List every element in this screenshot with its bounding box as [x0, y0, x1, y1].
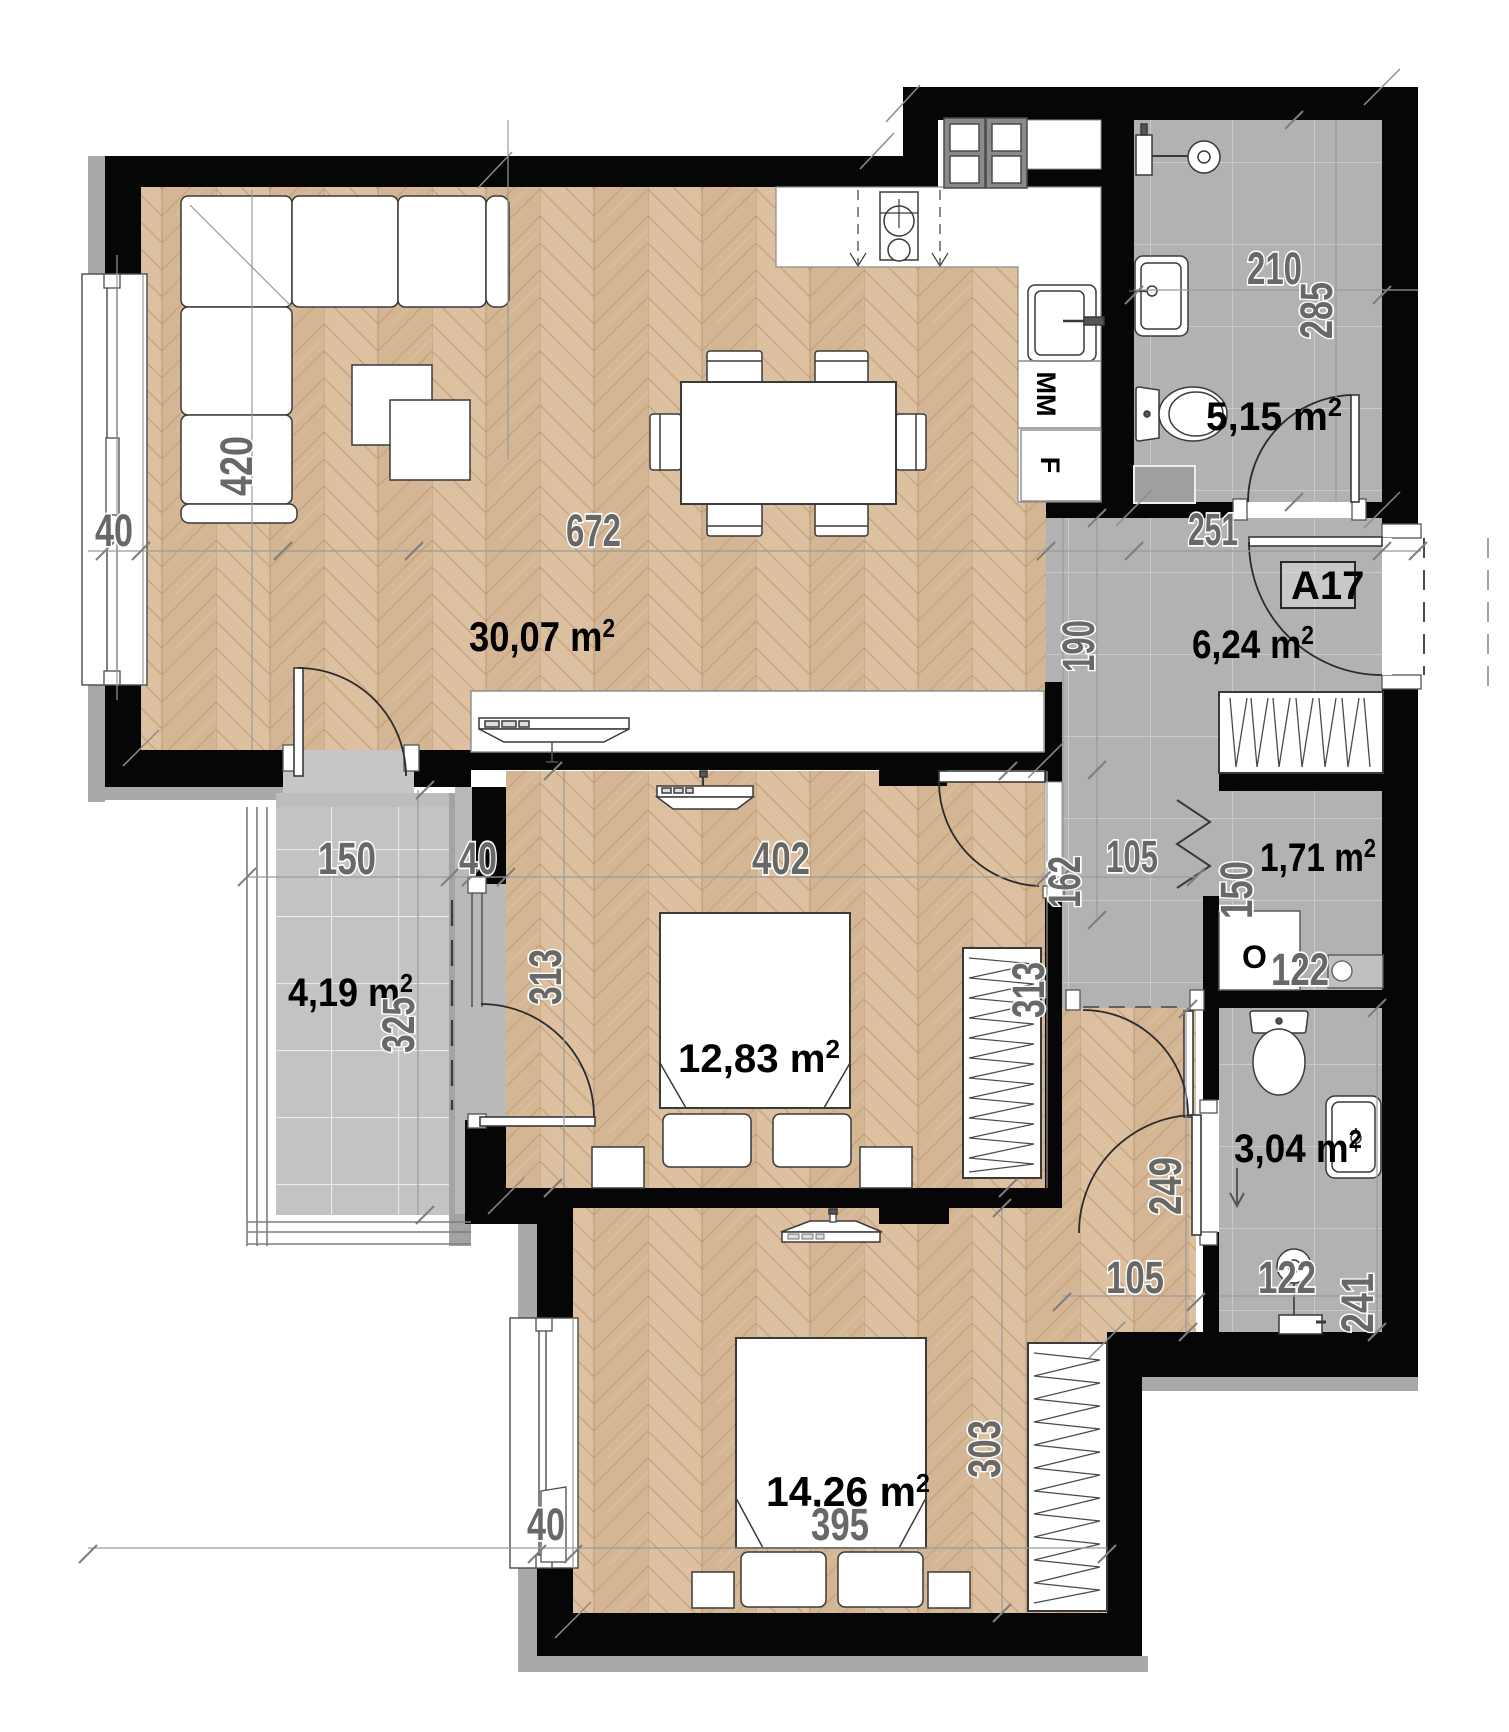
svg-text:395: 395 — [811, 1499, 869, 1550]
svg-text:285: 285 — [1291, 282, 1342, 339]
svg-text:672: 672 — [566, 505, 621, 556]
svg-text:40: 40 — [95, 505, 133, 556]
svg-text:F: F — [1035, 457, 1065, 474]
svg-text:1,71 m2: 1,71 m2 — [1260, 833, 1376, 880]
svg-text:150: 150 — [318, 833, 376, 884]
svg-text:O: O — [1242, 939, 1267, 975]
svg-text:303: 303 — [959, 1420, 1010, 1478]
svg-text:325: 325 — [373, 997, 424, 1053]
svg-text:6,24 m2: 6,24 m2 — [1192, 620, 1314, 667]
svg-text:249: 249 — [1140, 1157, 1191, 1215]
svg-text:150: 150 — [1211, 861, 1262, 919]
svg-text:251: 251 — [1188, 504, 1238, 555]
svg-text:12,83 m2: 12,83 m2 — [678, 1034, 840, 1081]
svg-text:5,15 m2: 5,15 m2 — [1206, 392, 1342, 439]
svg-text:241: 241 — [1332, 1273, 1383, 1333]
svg-text:420: 420 — [211, 436, 262, 496]
svg-text:313: 313 — [1003, 962, 1054, 1018]
svg-text:190: 190 — [1053, 620, 1104, 672]
svg-text:402: 402 — [752, 833, 810, 884]
svg-text:40: 40 — [459, 833, 497, 884]
svg-text:30,07 m2: 30,07 m2 — [469, 613, 615, 660]
svg-text:40: 40 — [527, 1499, 565, 1550]
svg-text:105: 105 — [1106, 1252, 1164, 1303]
svg-text:105: 105 — [1106, 831, 1158, 882]
svg-text:A17: A17 — [1291, 564, 1364, 608]
svg-text:3,04 m2: 3,04 m2 — [1234, 1124, 1362, 1171]
svg-text:122: 122 — [1258, 1252, 1316, 1303]
svg-text:313: 313 — [520, 949, 571, 1005]
svg-text:162: 162 — [1039, 856, 1090, 908]
svg-text:MM: MM — [1031, 372, 1061, 417]
svg-text:122: 122 — [1271, 944, 1329, 995]
